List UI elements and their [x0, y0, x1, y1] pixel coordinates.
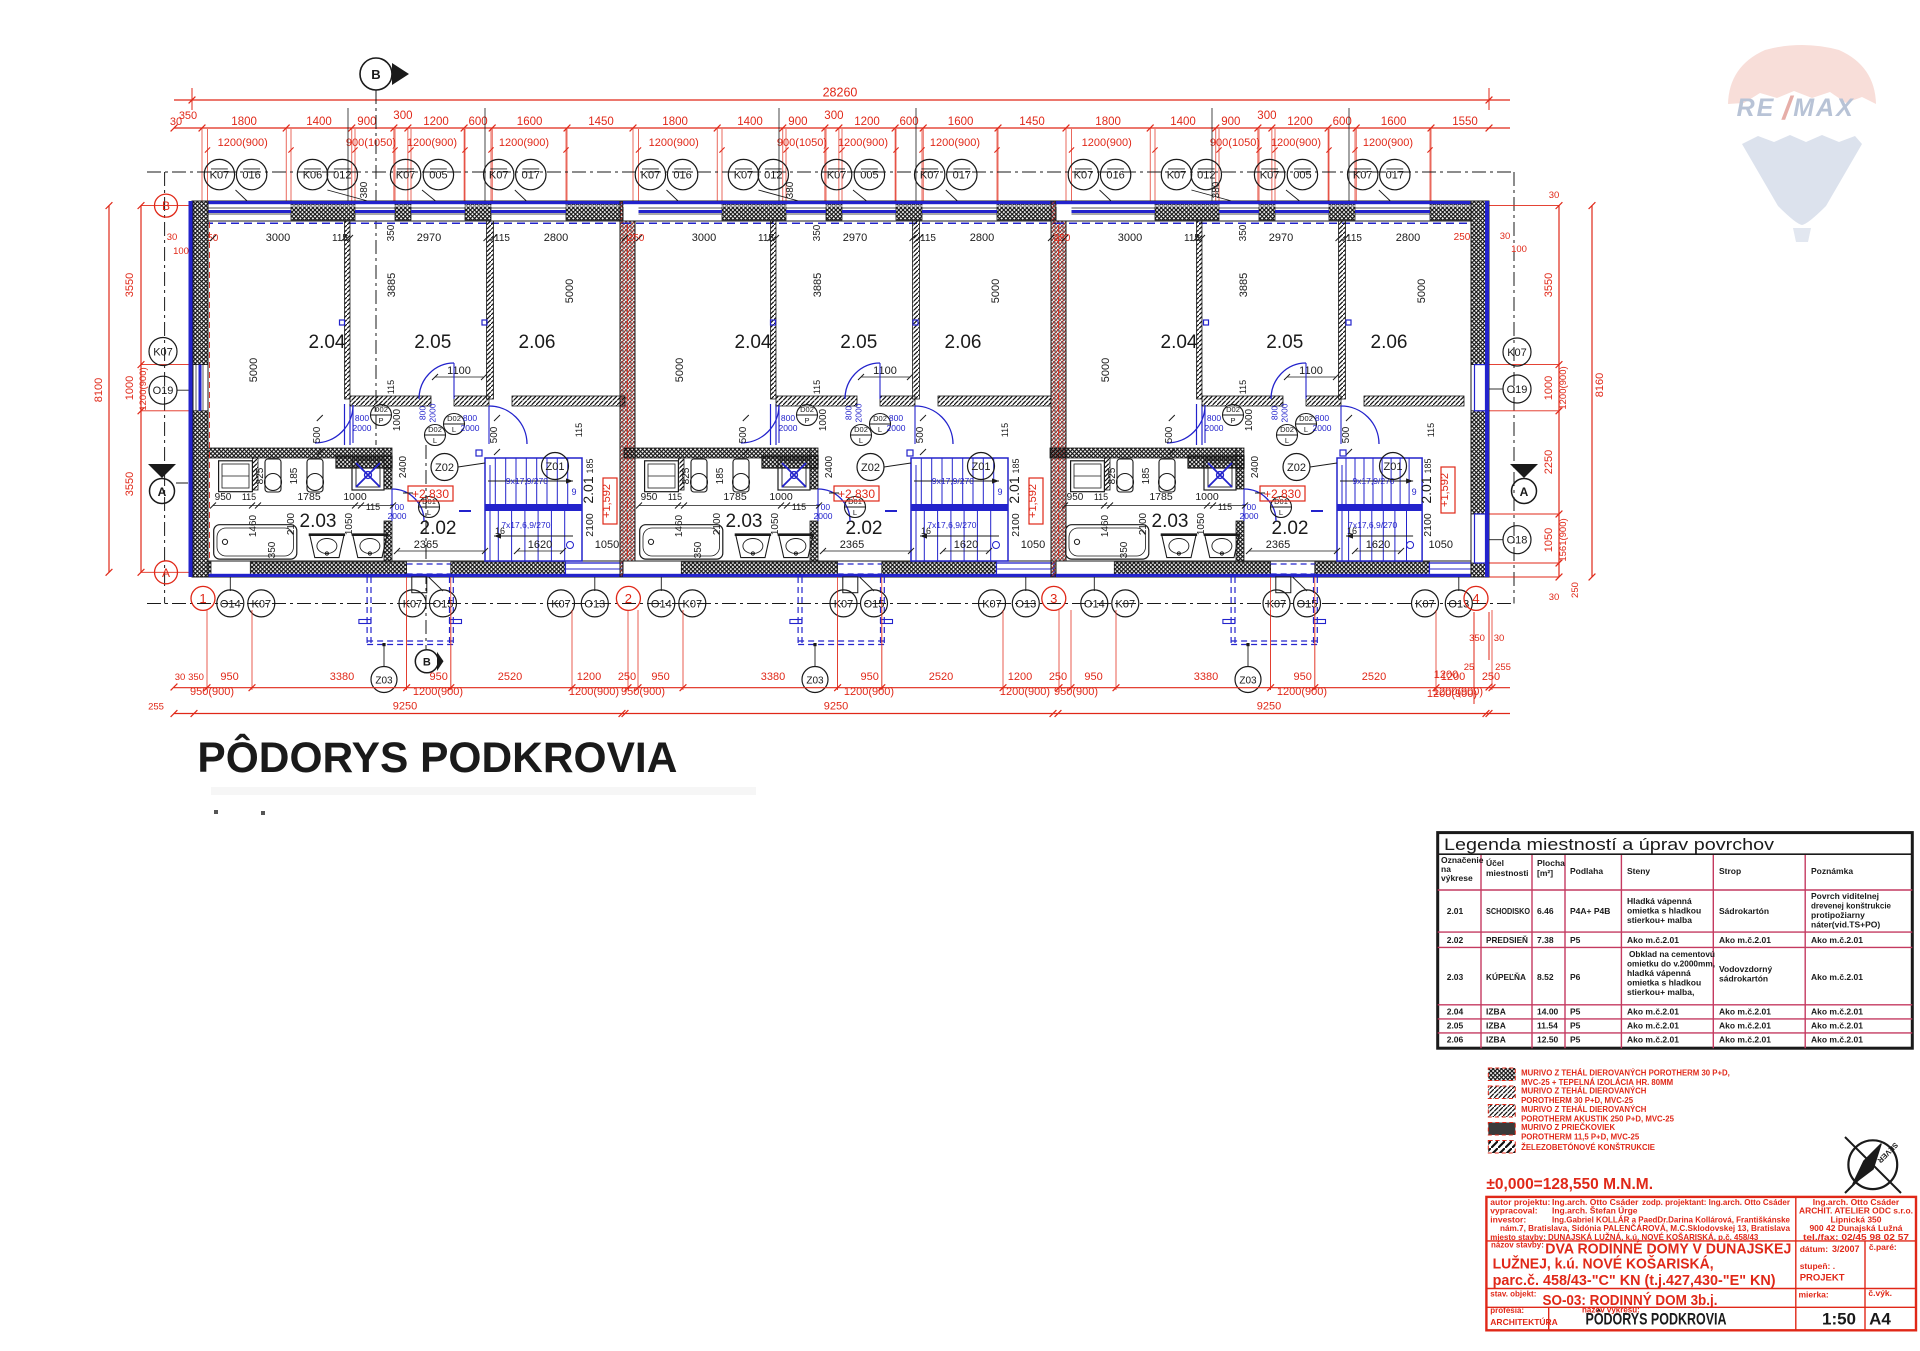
svg-text:2970: 2970 [417, 232, 441, 244]
svg-text:D02: D02 [873, 414, 887, 423]
svg-text:1800: 1800 [231, 116, 257, 128]
svg-text:1050: 1050 [1021, 539, 1045, 551]
svg-text:8160: 8160 [1594, 373, 1606, 397]
svg-text:2100: 2100 [1010, 513, 1022, 537]
svg-text:Ako m.č.2.01: Ako m.č.2.01 [1627, 1007, 1679, 1017]
svg-text:1000: 1000 [124, 376, 136, 400]
svg-text:115: 115 [920, 233, 936, 244]
svg-text:K07: K07 [641, 170, 661, 182]
svg-text:P5: P5 [1570, 1035, 1581, 1045]
svg-text:016: 016 [242, 170, 260, 182]
svg-text:1200: 1200 [577, 671, 601, 683]
svg-text:L: L [1285, 436, 1289, 445]
svg-text:185: 185 [1423, 458, 1433, 473]
svg-text:Plocha: Plocha [1537, 858, 1565, 868]
svg-text:Sádrokartón: Sádrokartón [1719, 906, 1769, 916]
svg-text:1100: 1100 [873, 365, 897, 377]
svg-text:omietku do v.2000mm,: omietku do v.2000mm, [1627, 959, 1715, 969]
svg-text:3550: 3550 [1543, 273, 1555, 297]
svg-text:900(1050): 900(1050) [346, 137, 396, 149]
svg-text:Ako m.č.2.01: Ako m.č.2.01 [1811, 935, 1863, 945]
svg-text:K06: K06 [303, 170, 323, 182]
svg-text:K07: K07 [1415, 598, 1435, 610]
svg-text:30: 30 [167, 232, 178, 243]
svg-text:L: L [452, 425, 456, 434]
svg-text:O14: O14 [220, 598, 241, 610]
svg-text:sádrokartón: sádrokartón [1719, 974, 1768, 984]
svg-text:350: 350 [1469, 633, 1485, 644]
svg-text:800: 800 [463, 413, 477, 423]
svg-text:L: L [878, 425, 882, 434]
svg-text:A: A [1520, 485, 1529, 499]
svg-text:Z02: Z02 [1287, 462, 1306, 474]
svg-text:D02: D02 [854, 425, 868, 434]
svg-text:350: 350 [267, 541, 278, 558]
svg-text:1200(900): 1200(900) [838, 137, 888, 149]
svg-text:SCHODISKO: SCHODISKO [1486, 906, 1530, 916]
svg-text:2000: 2000 [461, 423, 480, 433]
svg-text:K07: K07 [1507, 347, 1527, 359]
svg-text:2.02: 2.02 [1447, 935, 1464, 945]
svg-text:zodp. projektant: Ing.arch. Ot: zodp. projektant: Ing.arch. Otto Csáder [1642, 1197, 1791, 1207]
svg-text:+1,592: +1,592 [1439, 473, 1451, 507]
svg-text:PÔDORYS PODKROVIA: PÔDORYS PODKROVIA [197, 733, 677, 782]
svg-text:2000: 2000 [814, 511, 833, 521]
svg-text:1200: 1200 [1008, 671, 1032, 683]
svg-text:2400: 2400 [398, 455, 409, 478]
svg-text:3380: 3380 [761, 671, 785, 683]
svg-text:8100: 8100 [93, 378, 105, 402]
svg-text:16: 16 [495, 526, 505, 536]
svg-text:K07: K07 [734, 170, 754, 182]
svg-text:1050: 1050 [770, 512, 781, 535]
svg-text:1:50: 1:50 [1822, 1310, 1856, 1329]
svg-text:250: 250 [628, 233, 645, 244]
svg-text:2400: 2400 [1250, 455, 1261, 478]
svg-text:1000: 1000 [818, 408, 829, 431]
svg-text:2.04: 2.04 [735, 332, 772, 353]
svg-text:350: 350 [188, 672, 204, 683]
svg-text:2.01: 2.01 [580, 476, 596, 503]
svg-text:950(900): 950(900) [1054, 686, 1098, 698]
svg-text:950: 950 [1294, 671, 1312, 683]
svg-text:12.50: 12.50 [1537, 1035, 1559, 1045]
svg-text:380: 380 [785, 181, 796, 198]
svg-text:Ako m.č.2.01: Ako m.č.2.01 [1627, 1021, 1679, 1031]
svg-text:PROJEKT: PROJEKT [1800, 1273, 1845, 1284]
svg-text:250: 250 [1482, 671, 1500, 683]
svg-text:2800: 2800 [544, 232, 568, 244]
svg-text:800: 800 [844, 406, 854, 420]
svg-text:9250: 9250 [393, 701, 417, 713]
svg-text:IZBA: IZBA [1486, 1021, 1506, 1031]
svg-text:parc.č. 458/43-"C" KN (t.j.427: parc.č. 458/43-"C" KN (t.j.427,430-"E" K… [1493, 1273, 1776, 1289]
svg-text:1785: 1785 [723, 491, 747, 503]
svg-text:P4A+ P4B: P4A+ P4B [1570, 906, 1610, 916]
svg-text:2800: 2800 [970, 232, 994, 244]
svg-text:1000: 1000 [1543, 376, 1555, 400]
svg-text:5000: 5000 [674, 358, 686, 382]
svg-text:názov stavby:: názov stavby: [1491, 1241, 1544, 1250]
svg-text:5000: 5000 [990, 279, 1002, 303]
svg-text:Ako m.č.2.01: Ako m.č.2.01 [1719, 1021, 1771, 1031]
svg-text:3550: 3550 [124, 273, 136, 297]
svg-text:2365: 2365 [414, 539, 438, 551]
svg-text:2.06: 2.06 [1447, 1035, 1464, 1045]
svg-text:950: 950 [220, 671, 238, 683]
svg-text:Z03: Z03 [1239, 676, 1257, 687]
svg-text:950(900): 950(900) [621, 686, 665, 698]
svg-text:300: 300 [824, 110, 843, 122]
svg-text:1600: 1600 [517, 116, 543, 128]
svg-text:900: 900 [357, 116, 376, 128]
svg-text:3000: 3000 [1118, 232, 1142, 244]
svg-text:Ako m.č.2.01: Ako m.č.2.01 [1811, 1021, 1863, 1031]
svg-text:250: 250 [1054, 233, 1071, 244]
svg-text:1200(900): 1200(900) [1277, 686, 1327, 698]
svg-text:350: 350 [812, 224, 823, 241]
svg-text:2365: 2365 [840, 539, 864, 551]
svg-text:č.paré:: č.paré: [1869, 1242, 1897, 1252]
svg-text:L: L [1304, 425, 1308, 434]
svg-text:O15: O15 [1297, 598, 1318, 610]
svg-text:K07: K07 [252, 598, 272, 610]
svg-text:+2,830: +2,830 [412, 487, 449, 501]
svg-text:MURIVO Z TEHÁL DIEROVANÝCH: MURIVO Z TEHÁL DIEROVANÝCH [1521, 1087, 1647, 1096]
svg-text:2.05: 2.05 [1447, 1021, 1464, 1031]
svg-text:1200(900): 1200(900) [1363, 137, 1413, 149]
svg-text:3/2007: 3/2007 [1832, 1244, 1860, 1254]
svg-text:1200: 1200 [423, 116, 449, 128]
svg-text:2100: 2100 [1138, 512, 1149, 535]
svg-text:MVC-25 + TEPELNÁ IZOLÁCIA HR.: MVC-25 + TEPELNÁ IZOLÁCIA HR. 80MM [1521, 1078, 1673, 1087]
svg-text:Ako m.č.2.01: Ako m.č.2.01 [1811, 1007, 1863, 1017]
svg-text:500: 500 [1341, 426, 1352, 443]
svg-text:K07: K07 [1167, 170, 1187, 182]
svg-text:950: 950 [215, 492, 232, 503]
svg-text:D02: D02 [800, 405, 814, 414]
svg-text:Hladká vápenná: Hladká vápenná [1627, 896, 1692, 906]
svg-text:K07: K07 [1353, 170, 1373, 182]
svg-text:1100: 1100 [447, 365, 471, 377]
svg-text:9250: 9250 [1257, 701, 1281, 713]
svg-text:2.03: 2.03 [726, 511, 763, 532]
svg-text:č.výk.: č.výk. [1868, 1288, 1892, 1298]
svg-text:stierkou+ malba,: stierkou+ malba, [1627, 987, 1694, 997]
svg-text:3000: 3000 [266, 232, 290, 244]
svg-text:Z02: Z02 [435, 462, 454, 474]
svg-text:017: 017 [1386, 170, 1404, 182]
svg-text:2000: 2000 [779, 423, 798, 433]
svg-text:1200(900): 1200(900) [1271, 137, 1321, 149]
svg-text:2.06: 2.06 [1371, 332, 1408, 353]
svg-text:2.04: 2.04 [1161, 332, 1198, 353]
svg-text:1785: 1785 [1149, 491, 1173, 503]
svg-text:800: 800 [418, 406, 428, 420]
svg-text:2.06: 2.06 [519, 332, 556, 353]
svg-text:3380: 3380 [1194, 671, 1218, 683]
svg-text:350: 350 [1238, 224, 1249, 241]
svg-text:±0,000=128,550 M.N.M.: ±0,000=128,550 M.N.M. [1486, 1176, 1653, 1193]
svg-text:1600: 1600 [1381, 116, 1407, 128]
svg-text:L: L [433, 436, 437, 445]
svg-text:Ako m.č.2.01: Ako m.č.2.01 [1719, 935, 1771, 945]
svg-text:1: 1 [199, 591, 206, 606]
svg-text:stav. objekt:: stav. objekt: [1490, 1290, 1536, 1299]
svg-text:1200(900): 1200(900) [413, 686, 463, 698]
svg-text:L: L [1279, 508, 1283, 517]
svg-text:K07: K07 [489, 170, 509, 182]
svg-text:Z03: Z03 [375, 676, 393, 687]
svg-text:250: 250 [1049, 671, 1067, 683]
svg-text:012: 012 [333, 170, 351, 182]
svg-text:POROTHERM 30 P+D, MVC-25: POROTHERM 30 P+D, MVC-25 [1521, 1096, 1634, 1105]
svg-text:K07: K07 [1267, 598, 1287, 610]
svg-text:005: 005 [429, 170, 447, 182]
svg-text:115: 115 [366, 502, 380, 512]
svg-text:2000: 2000 [1240, 511, 1259, 521]
svg-text:P5: P5 [1570, 1007, 1581, 1017]
svg-text:800: 800 [1270, 406, 1280, 420]
svg-text:500: 500 [489, 426, 500, 443]
svg-text:POROTHERM 11,5 P+D, MVC-25: POROTHERM 11,5 P+D, MVC-25 [1521, 1132, 1640, 1141]
svg-text:3885: 3885 [1238, 273, 1250, 297]
svg-text:D02: D02 [374, 405, 388, 414]
svg-text:5000: 5000 [1416, 279, 1428, 303]
svg-text:drevenej konštrukcie: drevenej konštrukcie [1811, 901, 1891, 911]
svg-text:5000: 5000 [564, 279, 576, 303]
svg-text:mierka:: mierka: [1799, 1289, 1829, 1299]
svg-text:9x17,9/270: 9x17,9/270 [1352, 476, 1394, 486]
svg-text:1200(900): 1200(900) [138, 367, 149, 410]
svg-text:P: P [1230, 416, 1235, 425]
svg-text:P6: P6 [1570, 972, 1581, 982]
svg-text:2250: 2250 [1543, 450, 1555, 474]
svg-text:D02: D02 [1299, 414, 1313, 423]
svg-text:185: 185 [715, 467, 726, 484]
svg-text:K07: K07 [551, 598, 571, 610]
svg-text:1450: 1450 [1019, 116, 1045, 128]
svg-text:2100: 2100 [712, 512, 723, 535]
svg-text:POROTHERM AKUSTIK 250 P+D, MVC: POROTHERM AKUSTIK 250 P+D, MVC-25 [1521, 1114, 1675, 1123]
svg-text:1050: 1050 [1196, 512, 1207, 535]
svg-text:800: 800 [889, 413, 903, 423]
svg-text:L: L [427, 508, 431, 517]
svg-text:950: 950 [1067, 492, 1084, 503]
svg-text:2.03: 2.03 [1447, 972, 1464, 982]
svg-text:6.46: 6.46 [1537, 906, 1554, 916]
svg-text:2000: 2000 [428, 403, 438, 422]
svg-text:1000: 1000 [1244, 408, 1255, 431]
svg-text:1200(900): 1200(900) [649, 137, 699, 149]
svg-text:5000: 5000 [248, 358, 260, 382]
svg-text:2520: 2520 [929, 671, 953, 683]
svg-text:185: 185 [1011, 458, 1021, 473]
svg-text:PREDSIEŇ: PREDSIEŇ [1486, 934, 1528, 945]
svg-text:250: 250 [618, 671, 636, 683]
svg-text:Obklad na cementovú: Obklad na cementovú [1629, 949, 1715, 959]
svg-text:3000: 3000 [692, 232, 716, 244]
svg-text:2.05: 2.05 [1266, 332, 1303, 353]
svg-text:900: 900 [1221, 116, 1240, 128]
svg-text:1050: 1050 [1543, 528, 1555, 552]
svg-text:2970: 2970 [1269, 232, 1293, 244]
svg-text:9250: 9250 [824, 701, 848, 713]
svg-text:Z01: Z01 [1384, 461, 1403, 473]
svg-text:DVA RODINNÉ DOMY V DUNAJSKEJ: DVA RODINNÉ DOMY V DUNAJSKEJ [1545, 1241, 1791, 1258]
svg-text:9: 9 [997, 487, 1002, 497]
svg-text:1400: 1400 [737, 116, 763, 128]
svg-text:950(900): 950(900) [190, 686, 234, 698]
svg-text:K07: K07 [153, 347, 173, 359]
svg-text:800: 800 [1207, 413, 1221, 423]
svg-text:950: 950 [1084, 671, 1102, 683]
svg-text:115: 115 [668, 492, 682, 502]
svg-text:D02: D02 [1280, 425, 1294, 434]
svg-text:D02: D02 [447, 414, 461, 423]
svg-text:PÔDORYS PODKROVIA: PÔDORYS PODKROVIA [1586, 1310, 1727, 1329]
svg-text:1550: 1550 [1452, 116, 1478, 128]
svg-text:B: B [371, 67, 380, 82]
svg-text:A: A [158, 485, 167, 499]
svg-text:Ako m.č.2.01: Ako m.č.2.01 [1627, 1035, 1679, 1045]
svg-text:K07: K07 [683, 598, 703, 610]
svg-text:hladká vápenná: hladká vápenná [1627, 968, 1691, 978]
svg-text:1400: 1400 [306, 116, 332, 128]
svg-text:+1,592: +1,592 [1027, 484, 1039, 518]
svg-text:30: 30 [1494, 633, 1505, 644]
svg-text:Ako m.č.2.01: Ako m.č.2.01 [1719, 1035, 1771, 1045]
svg-text:K07: K07 [827, 170, 847, 182]
svg-text:O14: O14 [651, 598, 672, 610]
svg-text:2400: 2400 [824, 455, 835, 478]
svg-text:005: 005 [860, 170, 878, 182]
svg-text:350: 350 [179, 110, 197, 122]
svg-text:K07: K07 [1116, 598, 1136, 610]
svg-text:017: 017 [522, 170, 540, 182]
svg-text:1200(900): 1200(900) [569, 686, 619, 698]
svg-text:B: B [423, 657, 431, 669]
svg-text:350: 350 [1119, 541, 1130, 558]
svg-text:protipožiarny: protipožiarny [1811, 910, 1865, 920]
svg-text:9x17,9/270: 9x17,9/270 [506, 476, 548, 486]
svg-text:2100: 2100 [584, 513, 596, 537]
svg-text:250: 250 [1454, 232, 1471, 243]
svg-text:115: 115 [494, 233, 510, 244]
svg-text:115: 115 [1218, 502, 1232, 512]
svg-text:2365: 2365 [1266, 539, 1290, 551]
svg-text:800: 800 [1315, 413, 1329, 423]
svg-text:1785: 1785 [297, 491, 321, 503]
svg-text:P: P [378, 416, 383, 425]
svg-text:5000: 5000 [1100, 358, 1112, 382]
svg-text:825: 825 [681, 467, 692, 484]
svg-text:115: 115 [1184, 233, 1200, 244]
svg-text:1450: 1450 [588, 116, 614, 128]
svg-text:115: 115 [1000, 423, 1010, 437]
svg-text:[m²]: [m²] [1537, 868, 1553, 878]
svg-text:1200(900): 1200(900) [1433, 686, 1483, 698]
svg-text:2.05: 2.05 [840, 332, 877, 353]
svg-text:LUŽNEJ, k.ú. NOVÉ KOŠARISKÁ,: LUŽNEJ, k.ú. NOVÉ KOŠARISKÁ, [1493, 1255, 1714, 1273]
svg-text:2000: 2000 [1280, 403, 1290, 422]
svg-text:2000: 2000 [1313, 423, 1332, 433]
svg-text:+1,592: +1,592 [601, 484, 613, 518]
svg-text:2000: 2000 [1205, 423, 1224, 433]
svg-text:Strop: Strop [1719, 866, 1741, 876]
svg-text:16: 16 [921, 526, 931, 536]
svg-text:500: 500 [915, 426, 926, 443]
svg-text:900(1050): 900(1050) [1210, 137, 1260, 149]
svg-text:omietka s hladkou: omietka s hladkou [1627, 978, 1701, 988]
svg-text:2000: 2000 [854, 403, 864, 422]
svg-text:2.02: 2.02 [1272, 518, 1309, 539]
svg-text:1000: 1000 [343, 491, 367, 503]
svg-text:250: 250 [1570, 582, 1581, 598]
svg-text:MURIVO Z TEHÁL DIEROVANÝCH: MURIVO Z TEHÁL DIEROVANÝCH [1521, 1105, 1647, 1114]
svg-text:9x17,9/270: 9x17,9/270 [932, 476, 974, 486]
svg-text:P: P [804, 416, 809, 425]
svg-text:115: 115 [574, 423, 584, 437]
svg-text:MURIVO Z PRIEČKOVIEK: MURIVO Z PRIEČKOVIEK [1521, 1123, 1615, 1132]
svg-text:16: 16 [1347, 526, 1357, 536]
svg-text:005: 005 [1293, 170, 1311, 182]
svg-text:KÚPEĽŇA: KÚPEĽŇA [1486, 971, 1526, 982]
svg-text:1200(900): 1200(900) [218, 137, 268, 149]
svg-text:1200(900): 1200(900) [844, 686, 894, 698]
svg-text:L: L [859, 436, 863, 445]
svg-text:K07: K07 [920, 170, 940, 182]
svg-text:2800: 2800 [1396, 232, 1420, 244]
svg-text:30: 30 [175, 672, 186, 683]
svg-text:100: 100 [173, 246, 189, 257]
svg-text:14.00: 14.00 [1537, 1007, 1559, 1017]
svg-text:800: 800 [355, 413, 369, 423]
svg-text:950: 950 [651, 671, 669, 683]
svg-text:ŽELEZOBETÓNOVÉ KONŠTRUKCIE: ŽELEZOBETÓNOVÉ KONŠTRUKCIE [1521, 1143, 1655, 1152]
svg-text:Ako m.č.2.01: Ako m.č.2.01 [1627, 935, 1679, 945]
svg-text:11.54: 11.54 [1537, 1021, 1558, 1031]
svg-text:1460: 1460 [674, 514, 685, 537]
svg-text:900(1050): 900(1050) [777, 137, 827, 149]
svg-text:380: 380 [1211, 181, 1222, 198]
svg-text:2: 2 [625, 591, 632, 606]
svg-text:A4: A4 [1869, 1310, 1891, 1329]
svg-text:náter(vid.TS+PO): náter(vid.TS+PO) [1811, 920, 1880, 930]
svg-text:1200(900): 1200(900) [499, 137, 549, 149]
svg-text:+2,830: +2,830 [1264, 487, 1301, 501]
svg-text:2000: 2000 [887, 423, 906, 433]
svg-text:Ako m.č.2.01: Ako m.č.2.01 [1719, 1007, 1771, 1017]
svg-text:K07: K07 [1074, 170, 1094, 182]
svg-text:Podlaha: Podlaha [1570, 866, 1603, 876]
svg-text:950: 950 [861, 671, 879, 683]
svg-text:25: 25 [1464, 662, 1475, 673]
svg-text:Povrch viditelnej: Povrch viditelnej [1811, 891, 1879, 901]
svg-text:950: 950 [430, 671, 448, 683]
svg-text:Z02: Z02 [861, 462, 880, 474]
svg-text:Z01: Z01 [546, 461, 565, 473]
svg-text:500: 500 [1164, 426, 1175, 443]
svg-text:825: 825 [1107, 467, 1118, 484]
svg-text:300: 300 [1257, 110, 1276, 122]
svg-text:115: 115 [758, 233, 774, 244]
svg-text:115: 115 [812, 380, 822, 394]
svg-text:+2,830: +2,830 [838, 487, 875, 501]
svg-text:1800: 1800 [1095, 116, 1121, 128]
svg-text:28260: 28260 [823, 86, 858, 100]
svg-text:2.01: 2.01 [1418, 476, 1434, 503]
